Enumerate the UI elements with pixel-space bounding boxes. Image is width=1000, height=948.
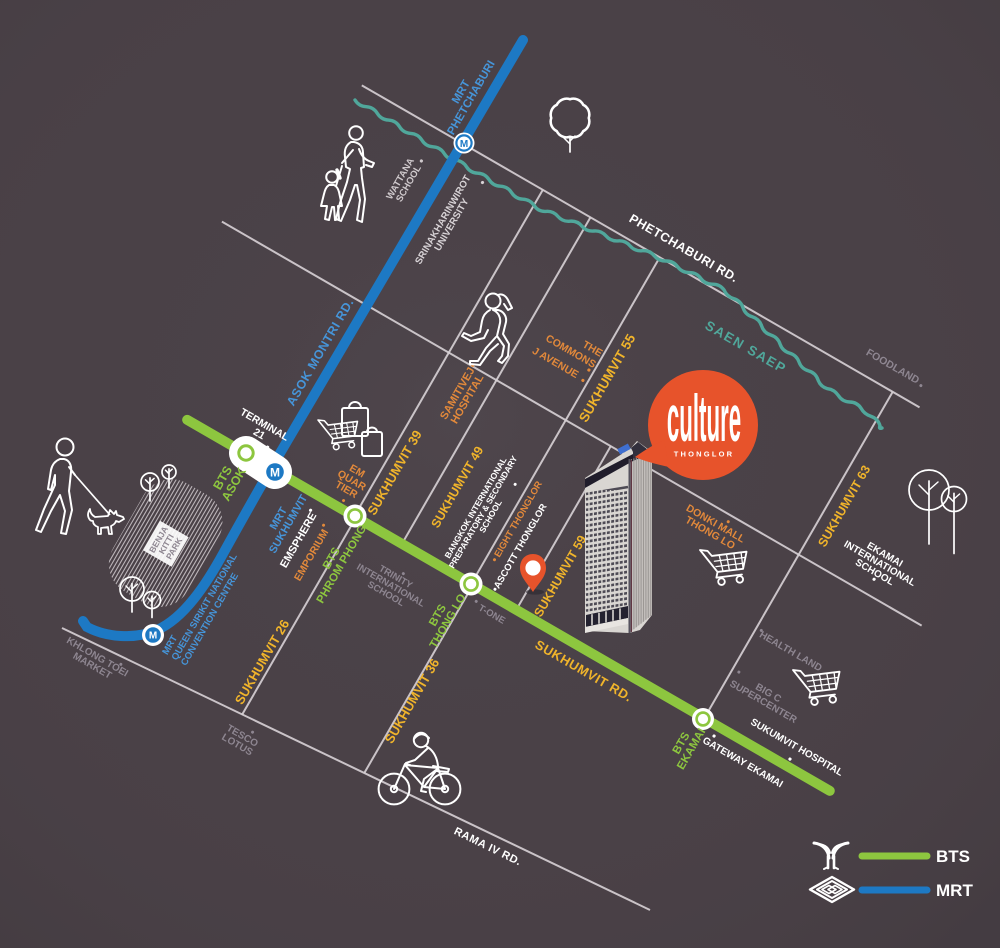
svg-text:M: M — [149, 631, 157, 642]
svg-text:culture: culture — [667, 382, 741, 456]
svg-text:M: M — [460, 139, 468, 150]
svg-text:BTS: BTS — [936, 847, 970, 866]
svg-text:MRT: MRT — [936, 881, 973, 900]
svg-text:THONGLOR: THONGLOR — [674, 450, 735, 459]
svg-text:M: M — [270, 465, 280, 479]
